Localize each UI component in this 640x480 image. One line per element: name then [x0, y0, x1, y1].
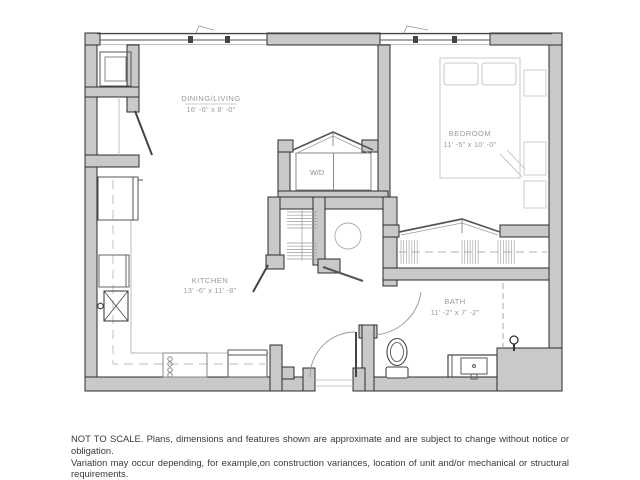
wall-living-bedroom-divider	[378, 45, 390, 203]
nightstands	[524, 70, 546, 208]
room-dims-bedroom: 11' -5" x 10' -0"	[444, 140, 497, 149]
wall-bath-closet	[383, 268, 549, 280]
bedroom-closet-doors	[399, 219, 500, 235]
room-dims-dining-living: 16' -6" x 8' -0"	[186, 105, 235, 114]
window-annotation-flag	[196, 26, 214, 33]
pantry-door-leaf	[253, 265, 268, 292]
upper-cabinets-dashed	[113, 180, 265, 364]
bed	[440, 58, 525, 178]
base-cabinet-appliance	[228, 350, 267, 377]
washer-dryer	[296, 153, 371, 190]
interior-walls	[85, 45, 549, 391]
entry-door-swing	[310, 332, 355, 377]
closet-door-leaf	[135, 111, 152, 155]
hall-door-leaf	[323, 267, 363, 281]
toilet	[386, 339, 408, 379]
refrigerator	[98, 177, 143, 220]
vanity-sink	[448, 355, 497, 379]
washer-dryer-label: W/D	[310, 168, 324, 177]
utility-chase	[100, 52, 131, 86]
bath-door-swing	[372, 292, 421, 335]
window-annotation-flag	[404, 26, 428, 33]
disclaimer-line-2: Variation may occur depending, for examp…	[71, 457, 569, 480]
disclaimer: NOT TO SCALE. Plans, dimensions and feat…	[71, 433, 569, 480]
wall-top-corner-right	[490, 33, 562, 45]
room-label-kitchen: KITCHEN	[192, 276, 228, 285]
room-label-dining-living: DINING/LIVING	[181, 94, 240, 103]
foyer-round-table	[335, 223, 361, 249]
wall-top-corner-left	[85, 33, 100, 45]
kitchen-sink	[97, 291, 128, 321]
floor-plan-drawing: DINING/LIVING 16' -6" x 8' -0" BEDROOM 1…	[0, 0, 640, 430]
disclaimer-line-1: NOT TO SCALE. Plans, dimensions and feat…	[71, 433, 569, 457]
kitchen-counters	[113, 180, 270, 364]
wd-bifold-doors	[293, 132, 373, 154]
wall-top-center	[267, 33, 380, 45]
corner-column	[497, 348, 562, 391]
room-dims-kitchen: 13' -6" x 11' -8"	[184, 286, 237, 295]
room-label-bath: BATH	[444, 297, 466, 306]
wall-right	[549, 33, 562, 391]
floor-plan-page: DINING/LIVING 16' -6" x 8' -0" BEDROOM 1…	[0, 0, 640, 480]
range	[163, 353, 207, 377]
dishwasher	[99, 255, 129, 287]
room-dims-bath: 11' -2" x 7' -2"	[431, 308, 480, 317]
room-label-bedroom: BEDROOM	[449, 129, 491, 138]
entry-threshold	[315, 380, 353, 386]
